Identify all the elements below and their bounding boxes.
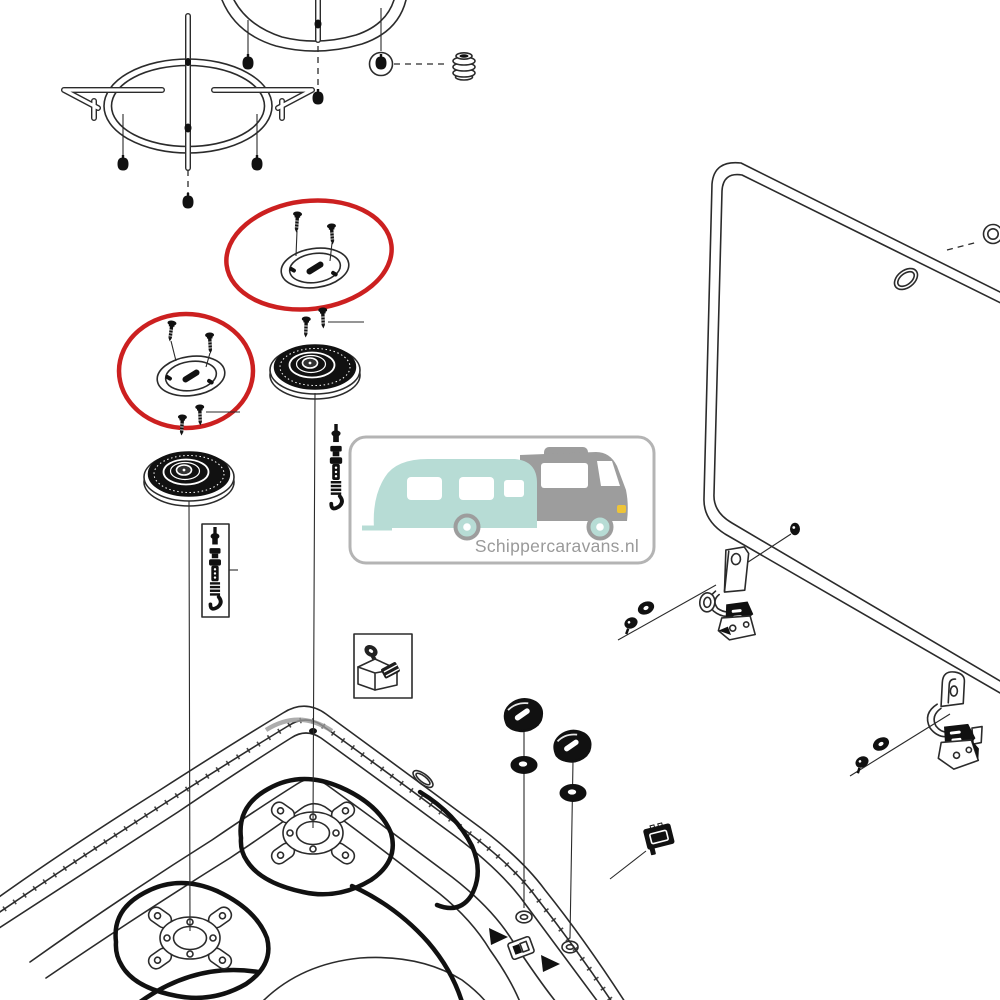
hinge-assembly-right bbox=[925, 671, 985, 771]
burner-body-right bbox=[270, 345, 360, 399]
spark-connector bbox=[642, 821, 676, 856]
headlight bbox=[617, 505, 626, 513]
control-knob-1 bbox=[501, 696, 545, 734]
burner-screw bbox=[301, 316, 311, 337]
rubber-foot bbox=[183, 193, 194, 209]
rubber-foot bbox=[243, 54, 254, 70]
knob-nut-1 bbox=[511, 757, 537, 774]
recess-outline-flow bbox=[352, 886, 462, 1000]
hinge-washer bbox=[871, 735, 892, 754]
burner-screw bbox=[177, 414, 187, 435]
burner-screw bbox=[195, 404, 205, 425]
hinge-screw bbox=[621, 615, 641, 634]
ignition-clamp-box bbox=[354, 634, 412, 698]
hob-body bbox=[0, 706, 625, 1000]
control-knob-2 bbox=[551, 727, 594, 764]
burner-cap-left bbox=[155, 352, 228, 400]
hinge-washer bbox=[636, 599, 657, 617]
hob-rim-shade bbox=[266, 720, 332, 731]
watermark-text: Schippercaravans.nl bbox=[475, 536, 639, 556]
lid-hole bbox=[891, 264, 922, 293]
rubber-foot bbox=[376, 54, 387, 70]
diagram-canvas: Schippercaravans.nl bbox=[0, 0, 1000, 1000]
cap-screw bbox=[205, 332, 215, 353]
hinge-washer-screw-left bbox=[618, 585, 716, 640]
burner-cap-right bbox=[279, 244, 352, 292]
exploded-diagram: Schippercaravans.nl bbox=[0, 0, 1000, 1000]
lid-corner-grommet bbox=[984, 225, 1000, 244]
lid-pin bbox=[790, 523, 800, 535]
cap-screw bbox=[327, 223, 337, 245]
hinge-washer-screw-right bbox=[850, 714, 950, 776]
burner-screw bbox=[318, 307, 328, 328]
knob-nut-2 bbox=[560, 785, 586, 802]
lid-pin-leader bbox=[742, 534, 791, 566]
cap-screw bbox=[165, 320, 176, 342]
thermocouple-boxed bbox=[202, 524, 238, 617]
rubber-grommet bbox=[453, 53, 475, 80]
rubber-foot bbox=[252, 155, 263, 171]
hinge-screw bbox=[852, 754, 872, 773]
burner-body-left bbox=[144, 452, 234, 506]
rubber-foot bbox=[118, 155, 129, 171]
position-arrow-2 bbox=[541, 955, 560, 972]
watermark: Schippercaravans.nl bbox=[350, 437, 654, 563]
thermocouple bbox=[330, 424, 342, 508]
o-ring-1 bbox=[516, 911, 532, 923]
cap-screw bbox=[292, 211, 302, 233]
lid-corner-leader bbox=[947, 242, 978, 250]
